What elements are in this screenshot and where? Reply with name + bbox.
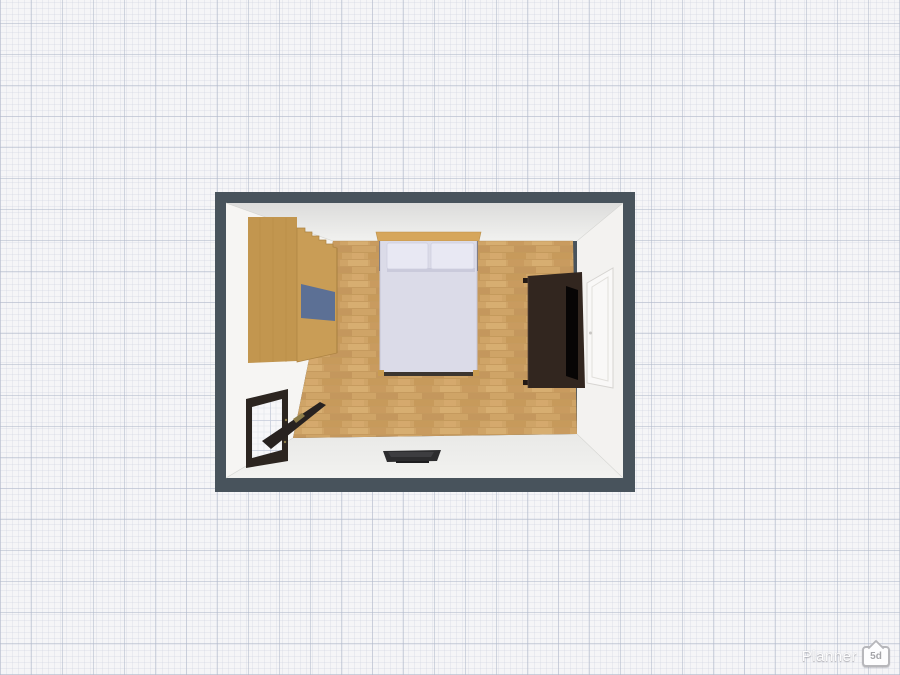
bed-headboard xyxy=(376,232,481,241)
tv-screen xyxy=(566,286,578,380)
double-bed[interactable] xyxy=(376,232,481,376)
planner5d-watermark: Planner 5d xyxy=(802,646,890,667)
pillow-right xyxy=(431,243,474,269)
door-closed[interactable] xyxy=(587,268,613,388)
pillow-left xyxy=(387,243,428,269)
watermark-badge-text: 5d xyxy=(870,651,882,662)
door-closed-leaf xyxy=(587,268,613,388)
door-hinge-bottom xyxy=(284,441,286,443)
planner5d-logo-icon: 5d xyxy=(862,646,890,667)
bed-foot-post-left xyxy=(378,370,384,376)
door-hinge-top xyxy=(285,419,287,421)
bed-foot-post-right xyxy=(473,370,479,376)
floorplan-scene xyxy=(0,0,900,675)
watermark-brand-text: Planner xyxy=(802,648,857,665)
flat-tv[interactable] xyxy=(383,450,441,463)
flat-tv-base xyxy=(396,461,429,463)
doorway-opening xyxy=(252,399,282,458)
dresser-with-tv[interactable] xyxy=(523,272,585,388)
door-closed-handle xyxy=(589,332,592,335)
flat-tv-sheen xyxy=(388,452,434,457)
bed-footboard xyxy=(380,372,477,376)
floorplan-canvas[interactable]: Planner 5d xyxy=(0,0,900,675)
